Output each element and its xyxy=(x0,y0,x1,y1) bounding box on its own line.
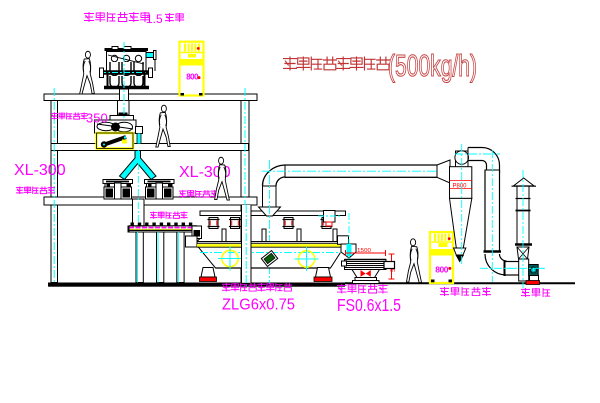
svg-text:ZLG6x0.75: ZLG6x0.75 xyxy=(222,297,295,314)
svg-text:800: 800 xyxy=(186,73,199,82)
svg-text:(500kg/h): (500kg/h) xyxy=(388,48,477,83)
svg-text:800: 800 xyxy=(435,265,448,275)
svg-text:350: 350 xyxy=(86,111,108,126)
svg-text:FS0.6x1.5: FS0.6x1.5 xyxy=(337,295,401,315)
svg-text:1500: 1500 xyxy=(357,248,371,254)
svg-text:1.5: 1.5 xyxy=(146,12,163,26)
svg-text:XL-300: XL-300 xyxy=(14,162,66,179)
